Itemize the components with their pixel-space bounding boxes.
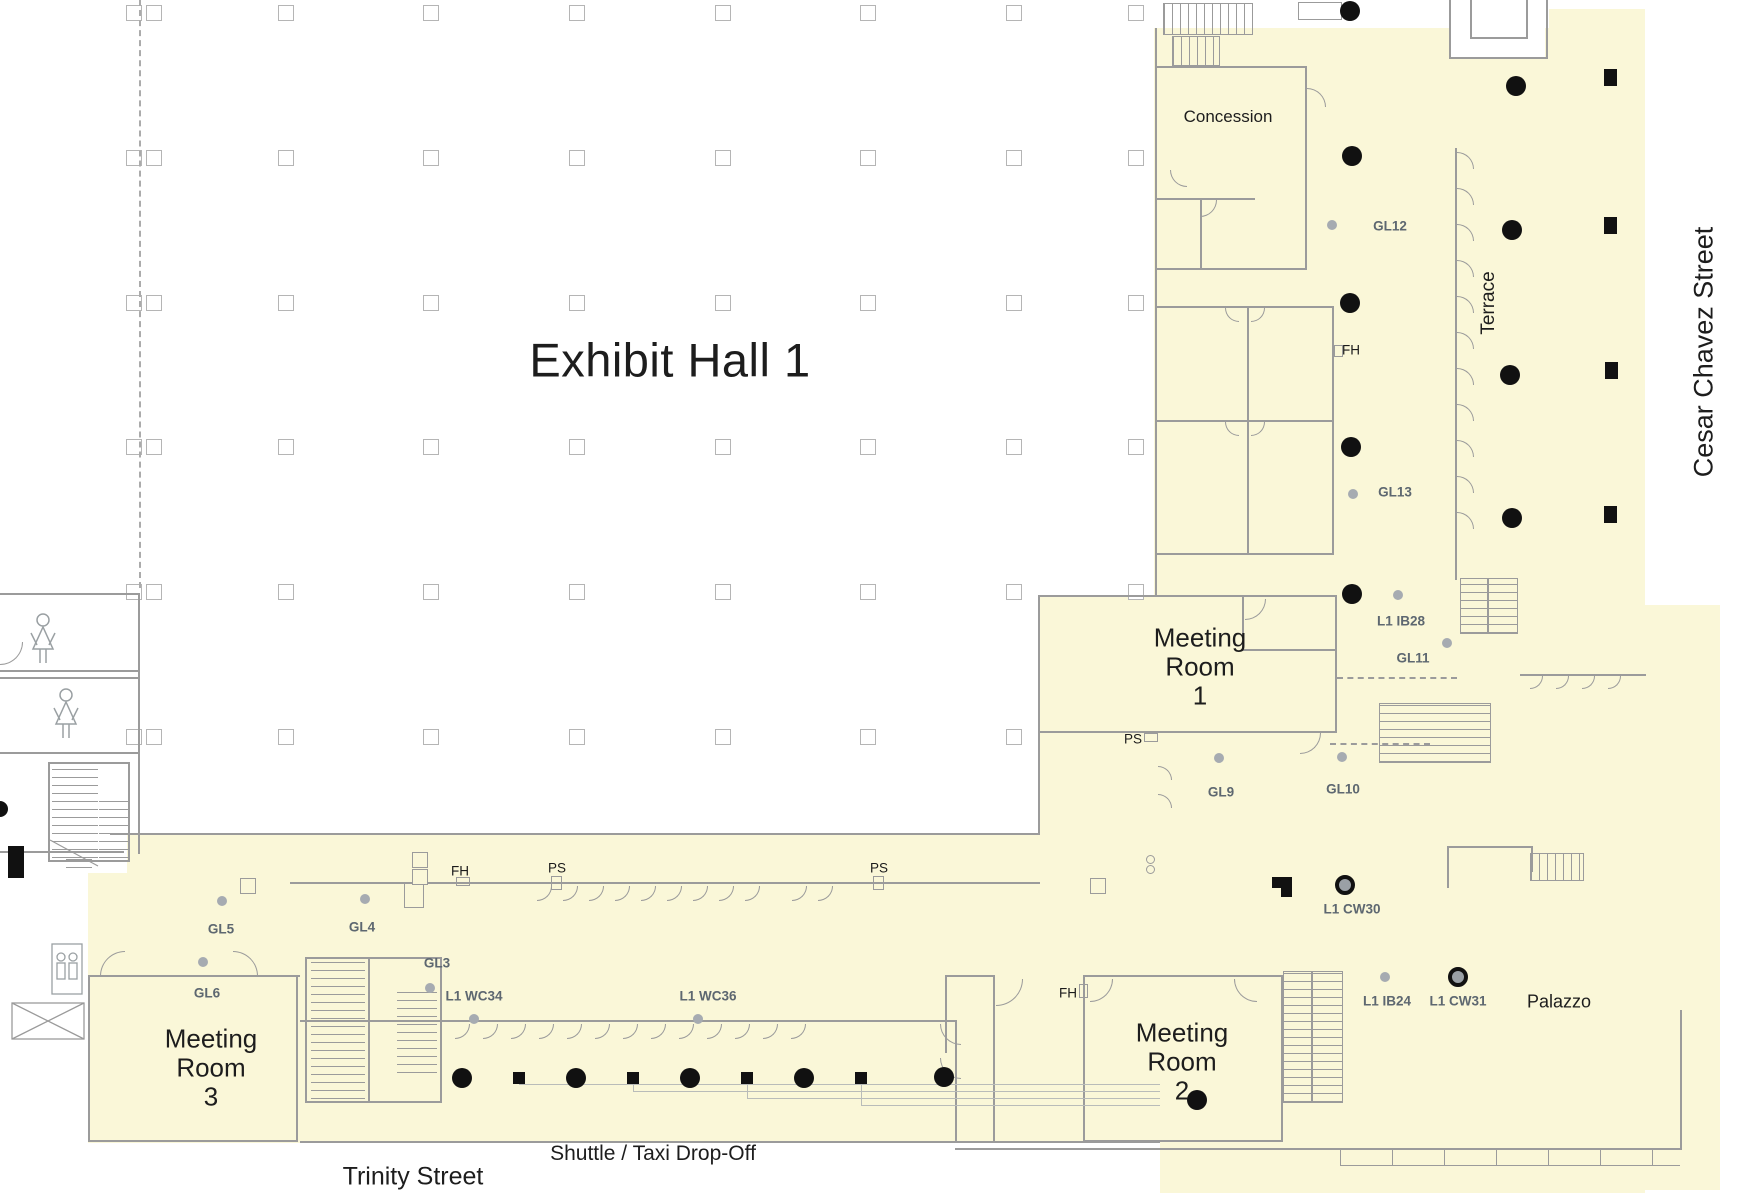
wall — [368, 957, 370, 1103]
grid-column-square — [1006, 295, 1022, 311]
column-square — [1604, 217, 1617, 234]
stair-hatch — [66, 852, 92, 868]
wall — [0, 670, 140, 672]
structure-box — [1298, 2, 1342, 20]
wall — [1083, 1140, 1283, 1142]
shuttle-taxi-drop-off-label: Shuttle / Taxi Drop-Off — [550, 1142, 756, 1166]
terrace-label: Terrace — [1478, 271, 1500, 334]
wall — [1680, 1010, 1682, 1150]
wall — [955, 1148, 1682, 1150]
wall — [0, 677, 140, 679]
highlight-region — [88, 873, 127, 1143]
grid-column-square — [423, 150, 439, 166]
gl11-label: GL11 — [1396, 651, 1429, 666]
gl3-label: GL3 — [424, 956, 450, 971]
canopy-line — [747, 1098, 1160, 1099]
wall — [945, 975, 947, 1053]
wall — [110, 833, 1040, 835]
paver-joint — [1652, 1149, 1653, 1165]
fh-mr2-label: FH — [1059, 986, 1077, 1001]
gl3-dot — [425, 983, 435, 993]
meeting-room-2-label-line: Room — [1136, 1047, 1229, 1076]
grid-column-square — [146, 439, 162, 455]
gl5-dot — [217, 896, 227, 906]
column-dot — [1340, 1, 1360, 21]
column-dot — [1502, 220, 1522, 240]
paver-joint — [1444, 1149, 1445, 1165]
l1-wc36-dot — [693, 1014, 703, 1024]
grid-column-square — [715, 150, 731, 166]
grid-column-square — [1006, 150, 1022, 166]
meeting-room-3-label: MeetingRoom3 — [165, 1024, 258, 1111]
l1-wc34-label: L1 WC34 — [445, 989, 502, 1004]
canopy-line — [861, 1105, 1160, 1106]
utility-tick — [1079, 984, 1088, 998]
grid-column-square — [860, 439, 876, 455]
grid-column-square — [146, 5, 162, 21]
meeting-room-1-label-line: Room — [1154, 652, 1247, 681]
grid-column-square — [1006, 5, 1022, 21]
wall — [1335, 595, 1337, 733]
column-dot — [1342, 146, 1362, 166]
wall — [1449, 0, 1451, 58]
column-square — [1605, 362, 1618, 379]
wall — [440, 957, 442, 1103]
palazzo-label: Palazzo — [1527, 992, 1591, 1013]
paver-joint — [1548, 1149, 1549, 1165]
grid-column-square — [278, 729, 294, 745]
service-flag-notch — [1272, 888, 1281, 897]
concession-label: Concession — [1184, 107, 1273, 127]
meeting-room-2-label: MeetingRoom2 — [1136, 1018, 1229, 1105]
column-dot — [1500, 365, 1520, 385]
wall — [1526, 0, 1528, 38]
column-square — [627, 1072, 639, 1084]
wall — [1038, 595, 1040, 835]
column-dot — [1502, 508, 1522, 528]
door-hardware-ring — [1146, 855, 1155, 864]
grid-column-square — [860, 295, 876, 311]
wall — [1155, 66, 1307, 68]
meeting-room-3-label-line: Room — [165, 1053, 258, 1082]
fh-upper-label: FH — [1342, 343, 1360, 358]
l1-ib28-dot — [1393, 590, 1403, 600]
grid-column-square — [278, 295, 294, 311]
grid-column-square — [1128, 295, 1144, 311]
wall — [1340, 1165, 1680, 1166]
column-dot — [1341, 437, 1361, 457]
wall — [290, 882, 1040, 884]
gl13-dot — [1348, 489, 1358, 499]
camera-ring-dot — [1335, 875, 1355, 895]
paver-joint — [1600, 1149, 1601, 1165]
stair-hatch — [1283, 971, 1343, 1103]
wall — [305, 957, 442, 959]
column-dot — [1506, 76, 1526, 96]
wall — [1447, 846, 1533, 848]
wall — [1155, 28, 1157, 597]
trinity-street-label: Trinity Street — [343, 1163, 484, 1192]
fh-left-label: FH — [451, 864, 469, 879]
wall — [48, 762, 50, 862]
grid-column-square — [278, 5, 294, 21]
column-dot — [1342, 584, 1362, 604]
wall — [1470, 0, 1472, 38]
grid-column-square — [569, 150, 585, 166]
wall — [1155, 553, 1334, 555]
utility-tick — [1144, 733, 1158, 742]
street-gap — [1451, 28, 1545, 58]
stair-hatch — [397, 987, 437, 1073]
gl11-dot — [1442, 638, 1452, 648]
grid-column-square — [1128, 5, 1144, 21]
grid-column-square — [860, 584, 876, 600]
wall — [1083, 975, 1283, 977]
wall — [1155, 268, 1307, 270]
grid-column-square — [860, 5, 876, 21]
grid-column-square — [1128, 584, 1144, 600]
highlight-region — [1549, 9, 1645, 28]
elevator-shaft-icon — [12, 1003, 84, 1039]
column-square — [741, 1072, 753, 1084]
grid-column-square — [146, 584, 162, 600]
meeting-room-1-label-line: 1 — [1154, 682, 1247, 711]
l1-cw30-label: L1 CW30 — [1323, 902, 1380, 917]
gl4-label: GL4 — [349, 920, 375, 935]
grid-column-square — [1006, 584, 1022, 600]
wall — [1038, 731, 1337, 733]
meeting-room-1-label: MeetingRoom1 — [1154, 623, 1247, 710]
l1-ib28-label: L1 IB28 — [1377, 614, 1425, 629]
grid-column-square — [278, 150, 294, 166]
wall — [1449, 57, 1548, 59]
stair-hatch — [99, 798, 128, 858]
ps-mid-label: PS — [870, 861, 888, 876]
paver-joint — [1340, 1149, 1341, 1165]
column-dot — [934, 1067, 954, 1087]
wall — [1242, 649, 1337, 651]
grid-column-square — [423, 295, 439, 311]
wall — [945, 975, 995, 977]
column-dot — [680, 1068, 700, 1088]
wall — [1546, 0, 1548, 58]
paver-joint — [1392, 1149, 1393, 1165]
meeting-room-3-label-line: 3 — [165, 1083, 258, 1112]
stair-hatch — [1379, 703, 1491, 763]
paver-joint — [1496, 1149, 1497, 1165]
lobby-dashed-line — [1337, 677, 1457, 679]
stair-hatch — [1460, 578, 1518, 634]
grid-column-square — [1128, 439, 1144, 455]
grid-column-square — [146, 729, 162, 745]
grid-column-square — [715, 729, 731, 745]
grid-column-square — [569, 584, 585, 600]
grid-column-square — [278, 439, 294, 455]
meeting-room-3-label-line: Meeting — [165, 1024, 258, 1053]
column-dot — [794, 1068, 814, 1088]
stair-hatch — [311, 961, 365, 1099]
hall-boundary-dashed-line — [139, 0, 141, 588]
column-square — [1604, 69, 1617, 86]
stair-hatch — [1172, 36, 1220, 66]
wall — [88, 1140, 298, 1142]
grid-column-square — [715, 584, 731, 600]
wall — [305, 1101, 442, 1103]
gl10-label: GL10 — [1326, 782, 1360, 797]
meeting-room-2-label-line: Meeting — [1136, 1018, 1229, 1047]
grid-column-square — [715, 295, 731, 311]
grid-column-square — [423, 5, 439, 21]
wall — [1155, 420, 1334, 422]
l1-ib24-dot — [1380, 972, 1390, 982]
gl5-label: GL5 — [208, 922, 234, 937]
floor-plan: Exhibit Hall 1ConcessionMeetingRoom1Meet… — [0, 0, 1740, 1200]
meeting-room-1-label-line: Meeting — [1154, 623, 1247, 652]
grid-column-square — [1006, 439, 1022, 455]
wall — [138, 593, 140, 854]
gl4-dot — [360, 894, 370, 904]
wall — [1470, 37, 1528, 39]
gl10-dot — [1337, 752, 1347, 762]
womens-restroom-icon — [54, 689, 78, 738]
grid-column-square — [715, 439, 731, 455]
grid-column-square — [1128, 150, 1144, 166]
wall — [1305, 66, 1307, 200]
grid-column-square — [146, 295, 162, 311]
column-dot — [1340, 293, 1360, 313]
gl6-dot — [198, 957, 208, 967]
wall — [296, 975, 298, 1142]
column-dot — [566, 1068, 586, 1088]
stair-hatch — [1530, 853, 1584, 881]
column-dot — [0, 801, 8, 817]
l1-wc36-label: L1 WC36 — [679, 989, 736, 1004]
wall — [1247, 306, 1249, 555]
grid-column-square — [569, 295, 585, 311]
grid-column-square — [569, 5, 585, 21]
ps-mr1-label: PS — [1124, 732, 1142, 747]
grid-column-square — [1006, 729, 1022, 745]
gl12-label: GL12 — [1373, 219, 1407, 234]
grid-column-square — [146, 150, 162, 166]
wall — [1305, 198, 1307, 270]
wall — [1083, 975, 1085, 1142]
structure-box — [404, 882, 424, 908]
wall-column-square — [1090, 878, 1106, 894]
grid-column-square — [860, 729, 876, 745]
grid-column-square — [423, 729, 439, 745]
grid-column-square — [860, 150, 876, 166]
wall — [1038, 595, 1337, 597]
wall — [993, 975, 995, 1142]
gl9-dot — [1214, 753, 1224, 763]
wall — [88, 975, 90, 1142]
wall — [128, 762, 130, 862]
grid-column-square — [423, 439, 439, 455]
gl13-label: GL13 — [1378, 485, 1412, 500]
grid-column-square — [569, 729, 585, 745]
title-label: Exhibit Hall 1 — [529, 333, 810, 388]
camera-ring-dot — [1448, 967, 1468, 987]
wall-column-square — [240, 878, 256, 894]
gl9-label: GL9 — [1208, 785, 1234, 800]
door-hardware-ring — [1146, 865, 1155, 874]
womens-restroom-icon — [31, 614, 55, 663]
door-arc — [0, 642, 23, 665]
stair-hatch — [1163, 3, 1253, 35]
column-square — [855, 1072, 867, 1084]
cesar-chavez-street-label: Cesar Chavez Street — [1689, 227, 1720, 478]
column-square — [513, 1072, 525, 1084]
highlight-region — [1645, 605, 1720, 1190]
canopy-line — [633, 1091, 1160, 1092]
elevator-icon — [52, 944, 82, 994]
grid-column-square — [278, 584, 294, 600]
canopy-line — [519, 1084, 1160, 1085]
stair-hatch — [52, 764, 98, 858]
wall — [0, 752, 140, 754]
grid-column-square — [715, 5, 731, 21]
ps-left-label: PS — [548, 861, 566, 876]
column-square — [1604, 506, 1617, 523]
wall — [305, 957, 307, 1103]
l1-wc34-dot — [469, 1014, 479, 1024]
gl6-label: GL6 — [194, 986, 220, 1001]
utility-tick — [873, 876, 884, 890]
grid-column-square — [423, 584, 439, 600]
utility-tick — [551, 876, 562, 890]
wall — [1155, 306, 1334, 308]
gl12-dot — [1327, 220, 1337, 230]
column-square — [8, 846, 24, 878]
wall — [1447, 846, 1449, 888]
l1-ib24-label: L1 IB24 — [1363, 994, 1411, 1009]
wall-column-square — [412, 852, 428, 868]
l1-cw31-label: L1 CW31 — [1429, 994, 1486, 1009]
meeting-room-2-label-line: 2 — [1136, 1077, 1229, 1106]
wall — [1332, 306, 1334, 555]
grid-column-square — [569, 439, 585, 455]
wall-column-square — [412, 869, 428, 885]
column-dot — [452, 1068, 472, 1088]
wall — [0, 593, 140, 595]
